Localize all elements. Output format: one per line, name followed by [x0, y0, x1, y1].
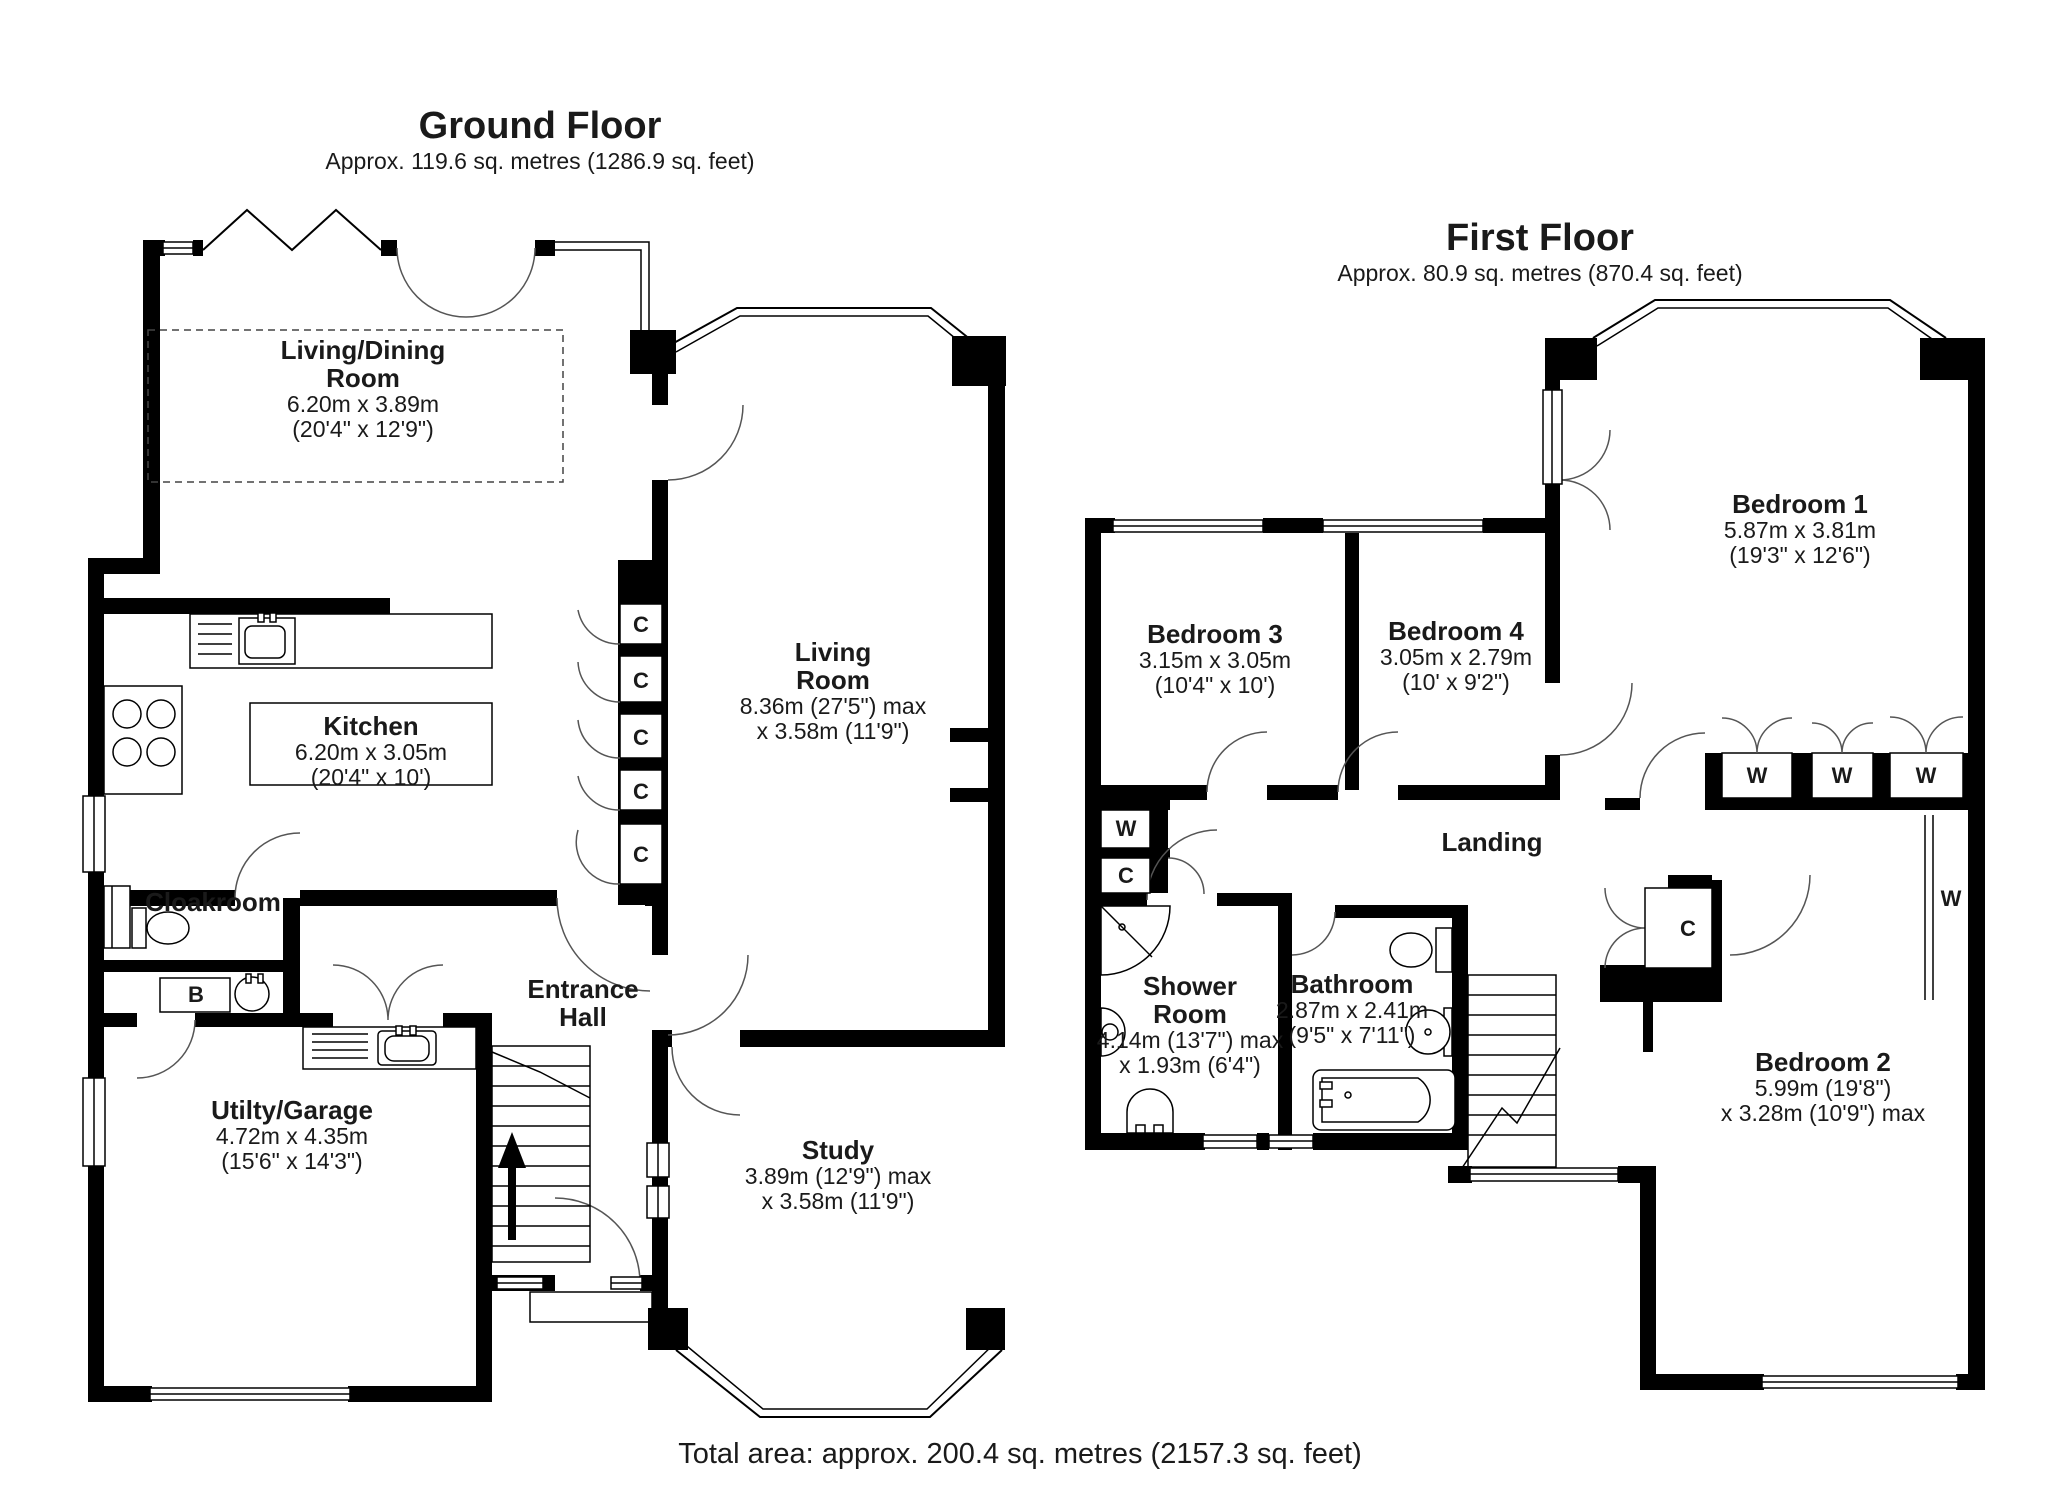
- utility-counter: [303, 1026, 476, 1069]
- room-label-bedroom1: Bedroom 1 5.87m x 3.81m (19'3" x 12'6"): [1724, 490, 1876, 569]
- kitchen-counter: [190, 613, 492, 668]
- landing-cupboard-door-arc: [1168, 858, 1204, 894]
- room-label-shower-room: Shower Room 4.14m (13'7") max x 1.93m (6…: [1097, 972, 1283, 1079]
- porch-step: [530, 1292, 652, 1322]
- room-label-landing: Landing: [1441, 828, 1542, 856]
- cupboard-marker: C: [633, 781, 649, 803]
- room-label-bedroom3: Bedroom 3 3.15m x 3.05m (10'4" x 10'): [1139, 620, 1291, 699]
- cupboard-marker: C: [633, 727, 649, 749]
- ground-floor-area-text: Approx. 119.6 sq. metres (1286.9 sq. fee…: [325, 148, 754, 176]
- cupboard-marker: C: [1118, 865, 1134, 887]
- garage-double-door-arcs: [333, 965, 443, 1020]
- first-floor-title: First Floor Approx. 80.9 sq. metres (870…: [1337, 218, 1742, 287]
- room-label-utility-garage: Utilty/Garage 4.72m x 4.35m (15'6" x 14'…: [211, 1096, 373, 1175]
- first-floor-area-text: Approx. 80.9 sq. metres (870.4 sq. feet): [1337, 260, 1742, 288]
- wardrobe-marker: W: [1116, 818, 1137, 840]
- corner-window-inner: [555, 250, 641, 336]
- room-label-bedroom4: Bedroom 4 3.05m x 2.79m (10' x 9'2"): [1380, 617, 1532, 696]
- bedroom3-door-arc: [1207, 732, 1267, 792]
- floorplan-page: Ground Floor Approx. 119.6 sq. metres (1…: [0, 0, 2048, 1489]
- bathroom-door-arc: [1292, 912, 1335, 955]
- shower-room-toilet-icon: [1127, 1089, 1173, 1133]
- french-door-arcs: [397, 248, 535, 317]
- wardrobe-marker: W: [1832, 765, 1853, 787]
- ground-floor-title-text: Ground Floor: [325, 106, 754, 148]
- room-label-kitchen: Kitchen 6.20m x 3.05m (20'4" x 10'): [295, 712, 447, 791]
- bathroom-toilet-icon: [1390, 928, 1452, 972]
- first-floor-title-text: First Floor: [1337, 218, 1742, 260]
- bedroom2-wardrobe: [1925, 815, 1933, 1000]
- hob-icon: [104, 686, 182, 794]
- cupboard-marker: C: [633, 844, 649, 866]
- room-label-entrance-hall: Entrance Hall: [518, 975, 648, 1031]
- bifold-door: [203, 210, 381, 250]
- dining-living-door-arc: [668, 405, 743, 480]
- room-label-study: Study 3.89m (12'9") max x 3.58m (11'9"): [745, 1136, 931, 1215]
- front-door-arc: [555, 1198, 640, 1283]
- bedroom1-bay-window-inner: [1597, 308, 1942, 346]
- stairs-up: [492, 1046, 590, 1262]
- wardrobe-marker: W: [1747, 765, 1768, 787]
- room-label-bathroom: Bathroom 2.87m x 2.41m (9'5" x 7'11"): [1276, 970, 1428, 1049]
- study-door-arc: [672, 1047, 740, 1115]
- shower-icon: [1101, 906, 1170, 975]
- room-label-cloakroom: Cloakroom: [145, 888, 281, 916]
- cupboard-marker: C: [633, 670, 649, 692]
- bedroom2-closet-door-arcs: [1605, 888, 1645, 968]
- wardrobe-marker: W: [1941, 888, 1962, 910]
- room-label-living-dining: Living/Dining Room 6.20m x 3.89m (20'4" …: [263, 336, 463, 443]
- lobby-door-arc: [1560, 683, 1632, 755]
- ground-floor-title: Ground Floor Approx. 119.6 sq. metres (1…: [325, 106, 754, 175]
- room-label-bedroom2: Bedroom 2 5.99m (19'8") x 3.28m (10'9") …: [1721, 1048, 1925, 1127]
- bedroom1-bay-window: [1593, 300, 1946, 338]
- boiler-lobby-door-arc: [137, 1020, 195, 1078]
- corner-window: [555, 242, 649, 336]
- ground-walls: [88, 240, 1006, 1402]
- basin-icon: [235, 977, 269, 1011]
- cupboard-marker: C: [633, 614, 649, 636]
- wardrobe-marker: W: [1916, 765, 1937, 787]
- bedroom2-closet-box: [1645, 888, 1712, 968]
- total-area-text: Total area: approx. 200.4 sq. metres (21…: [678, 1438, 1362, 1471]
- bedroom1-door-arc: [1640, 733, 1705, 798]
- stairs-down: [1462, 975, 1560, 1168]
- living-room-bay-window: [672, 308, 976, 344]
- ground-floor-plan: [83, 210, 1006, 1417]
- boiler-marker: B: [188, 984, 204, 1006]
- hall-living-door-arc: [668, 955, 748, 1035]
- bath-icon: [1313, 1070, 1455, 1130]
- living-room-bay-window-inner: [676, 316, 972, 352]
- airing-cupboard-arcs: [1560, 430, 1610, 530]
- bedroom2-door-arc: [1730, 875, 1810, 955]
- cupboard-marker: C: [1680, 918, 1696, 940]
- room-label-living-room: Living Room 8.36m (27'5") max x 3.58m (1…: [740, 638, 926, 745]
